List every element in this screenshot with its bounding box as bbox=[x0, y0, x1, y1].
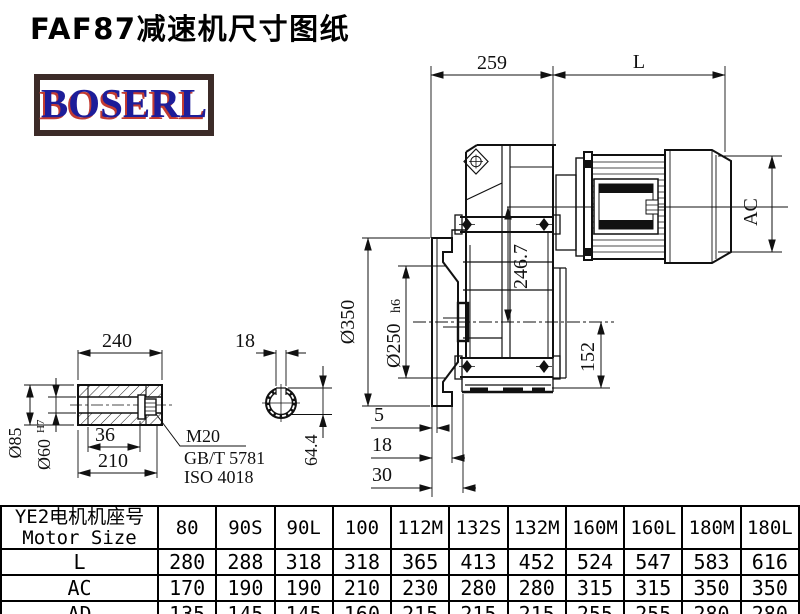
table-cell: 145 bbox=[216, 601, 274, 614]
table-cell: 365 bbox=[391, 549, 449, 575]
col-header: 80 bbox=[158, 506, 216, 549]
dim-64-4-label: 64.4 bbox=[301, 435, 321, 467]
table-cell: 452 bbox=[508, 549, 566, 575]
motor-size-header: YE2电机机座号 Motor Size bbox=[1, 506, 158, 549]
table-cell: 280 bbox=[449, 575, 507, 601]
dim-5-label: 5 bbox=[374, 404, 384, 426]
table-cell: 350 bbox=[741, 575, 799, 601]
table-cell: 280 bbox=[158, 549, 216, 575]
table-cell: 318 bbox=[275, 549, 333, 575]
fan-cowl bbox=[665, 150, 731, 263]
table-cell: 255 bbox=[566, 601, 624, 614]
table-cell: 280 bbox=[508, 575, 566, 601]
dim-60-tol-label: H7 bbox=[35, 419, 47, 433]
col-header: 90L bbox=[275, 506, 333, 549]
table-cell: 583 bbox=[682, 549, 740, 575]
table-row-AC: AC 170 190 190 210 230 280 280 315 315 3… bbox=[1, 575, 799, 601]
table-cell: 145 bbox=[275, 601, 333, 614]
table-cell: 190 bbox=[216, 575, 274, 601]
dim-keyway-18-label: 18 bbox=[235, 330, 255, 352]
gearbox-housing bbox=[452, 145, 566, 392]
dim-85-label: Ø85 bbox=[5, 428, 25, 459]
col-header: 90S bbox=[216, 506, 274, 549]
motor-size-header-en: Motor Size bbox=[2, 528, 157, 549]
bolt-gb-standard-label: GB/T 5781 bbox=[184, 448, 265, 468]
table-cell: 315 bbox=[566, 575, 624, 601]
dim-250-label: Ø250 bbox=[383, 324, 405, 368]
table-cell: 215 bbox=[391, 601, 449, 614]
dim-group-top: 259 L bbox=[431, 51, 725, 238]
table-cell: 135 bbox=[158, 601, 216, 614]
dim-group-face-offsets: 5 18 30 bbox=[371, 394, 476, 497]
table-cell: 210 bbox=[333, 575, 391, 601]
dim-60-label: Ø60 bbox=[34, 439, 54, 470]
col-header: 100 bbox=[333, 506, 391, 549]
table-cell: 190 bbox=[275, 575, 333, 601]
dim-L-label: L bbox=[633, 51, 645, 73]
row-label: AC bbox=[1, 575, 158, 601]
shaft-detail-view: 240 Ø85 Ø60 H7 36 210 M20 GB/T 5781 ISO … bbox=[5, 330, 265, 487]
table-cell: 413 bbox=[449, 549, 507, 575]
motor-size-header-cn: YE2电机机座号 bbox=[2, 507, 157, 528]
retaining-bolt bbox=[138, 395, 156, 419]
motor bbox=[556, 150, 731, 263]
row-label: AD bbox=[1, 601, 158, 614]
table-cell: 215 bbox=[508, 601, 566, 614]
dim-152-label: 152 bbox=[577, 342, 599, 372]
main-view: 259 L AC Ø350 Ø250 h6 246.7 bbox=[337, 51, 788, 497]
table-row-AD: AD 135 145 145 160 215 215 215 255 255 2… bbox=[1, 601, 799, 614]
bore-section-view: 18 64.4 bbox=[235, 330, 332, 466]
table-cell: 616 bbox=[741, 549, 799, 575]
table-cell: 350 bbox=[682, 575, 740, 601]
col-header: 180M bbox=[682, 506, 740, 549]
col-header: 132S bbox=[449, 506, 507, 549]
dim-210-label: 210 bbox=[98, 450, 128, 472]
table-cell: 160 bbox=[333, 601, 391, 614]
dim-group-ac: AC bbox=[718, 156, 782, 252]
dimension-table: YE2电机机座号 Motor Size 80 90S 90L 100 112M … bbox=[0, 505, 800, 614]
dim-246-label: 246.7 bbox=[510, 244, 532, 289]
dim-ac-label: AC bbox=[740, 198, 762, 226]
page: FAF87减速机尺寸图纸 BOSERL bbox=[0, 0, 800, 614]
table-cell: 547 bbox=[624, 549, 682, 575]
dim-250-tol-label: h6 bbox=[389, 299, 404, 313]
table-cell: 318 bbox=[333, 549, 391, 575]
col-header: 160M bbox=[566, 506, 624, 549]
dim-350-label: Ø350 bbox=[337, 300, 359, 344]
dim-30-label: 30 bbox=[372, 464, 392, 486]
table-cell: 524 bbox=[566, 549, 624, 575]
table-cell: 170 bbox=[158, 575, 216, 601]
col-header: 132M bbox=[508, 506, 566, 549]
dim-18-label: 18 bbox=[372, 434, 392, 456]
table-cell: 280 bbox=[741, 601, 799, 614]
col-header: 180L bbox=[741, 506, 799, 549]
bolt-m20-label: M20 bbox=[186, 426, 220, 446]
col-header: 112M bbox=[391, 506, 449, 549]
table-cell: 288 bbox=[216, 549, 274, 575]
row-label: L bbox=[1, 549, 158, 575]
dim-259-label: 259 bbox=[477, 52, 507, 74]
table-cell: 255 bbox=[624, 601, 682, 614]
col-header: 160L bbox=[624, 506, 682, 549]
table-cell: 215 bbox=[449, 601, 507, 614]
bolt-iso-standard-label: ISO 4018 bbox=[184, 467, 254, 487]
dim-240-label: 240 bbox=[102, 330, 132, 352]
table-cell: 280 bbox=[682, 601, 740, 614]
technical-drawing: 259 L AC Ø350 Ø250 h6 246.7 bbox=[0, 0, 800, 505]
table-row-L: L 280 288 318 318 365 413 452 524 547 58… bbox=[1, 549, 799, 575]
dim-36-label: 36 bbox=[95, 424, 115, 446]
table-cell: 230 bbox=[391, 575, 449, 601]
table-header-row: YE2电机机座号 Motor Size 80 90S 90L 100 112M … bbox=[1, 506, 799, 549]
table-cell: 315 bbox=[624, 575, 682, 601]
